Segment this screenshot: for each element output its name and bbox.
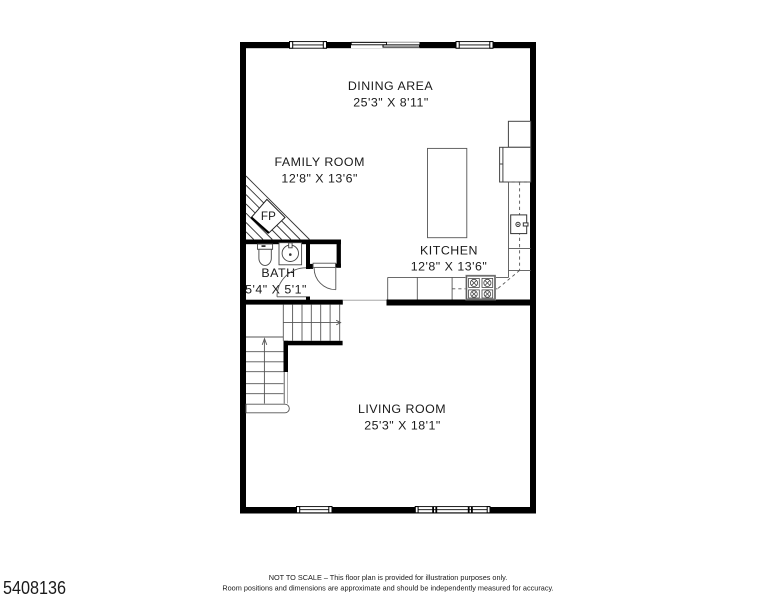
svg-text:DINING AREA: DINING AREA <box>348 79 434 93</box>
svg-text:FAMILY ROOM: FAMILY ROOM <box>274 155 364 169</box>
svg-text:12'8" X 13'6": 12'8" X 13'6" <box>281 172 358 186</box>
svg-text:NOT TO SCALE – This floor plan: NOT TO SCALE – This floor plan is provid… <box>269 573 508 582</box>
svg-text:KITCHEN: KITCHEN <box>420 243 478 257</box>
svg-text:Room positions and dimensions: Room positions and dimensions are approx… <box>222 584 553 593</box>
svg-text:5'4" X 5'1": 5'4" X 5'1" <box>245 283 307 297</box>
svg-text:25'3" X 18'1": 25'3" X 18'1" <box>364 419 441 433</box>
svg-text:BATH: BATH <box>261 266 295 280</box>
svg-text:25'3" X 8'11": 25'3" X 8'11" <box>353 95 429 109</box>
svg-text:LIVING ROOM: LIVING ROOM <box>358 402 446 416</box>
svg-text:5408136: 5408136 <box>3 577 66 598</box>
svg-text:12'8" X 13'6": 12'8" X 13'6" <box>411 259 488 273</box>
svg-text:FP: FP <box>261 210 276 223</box>
